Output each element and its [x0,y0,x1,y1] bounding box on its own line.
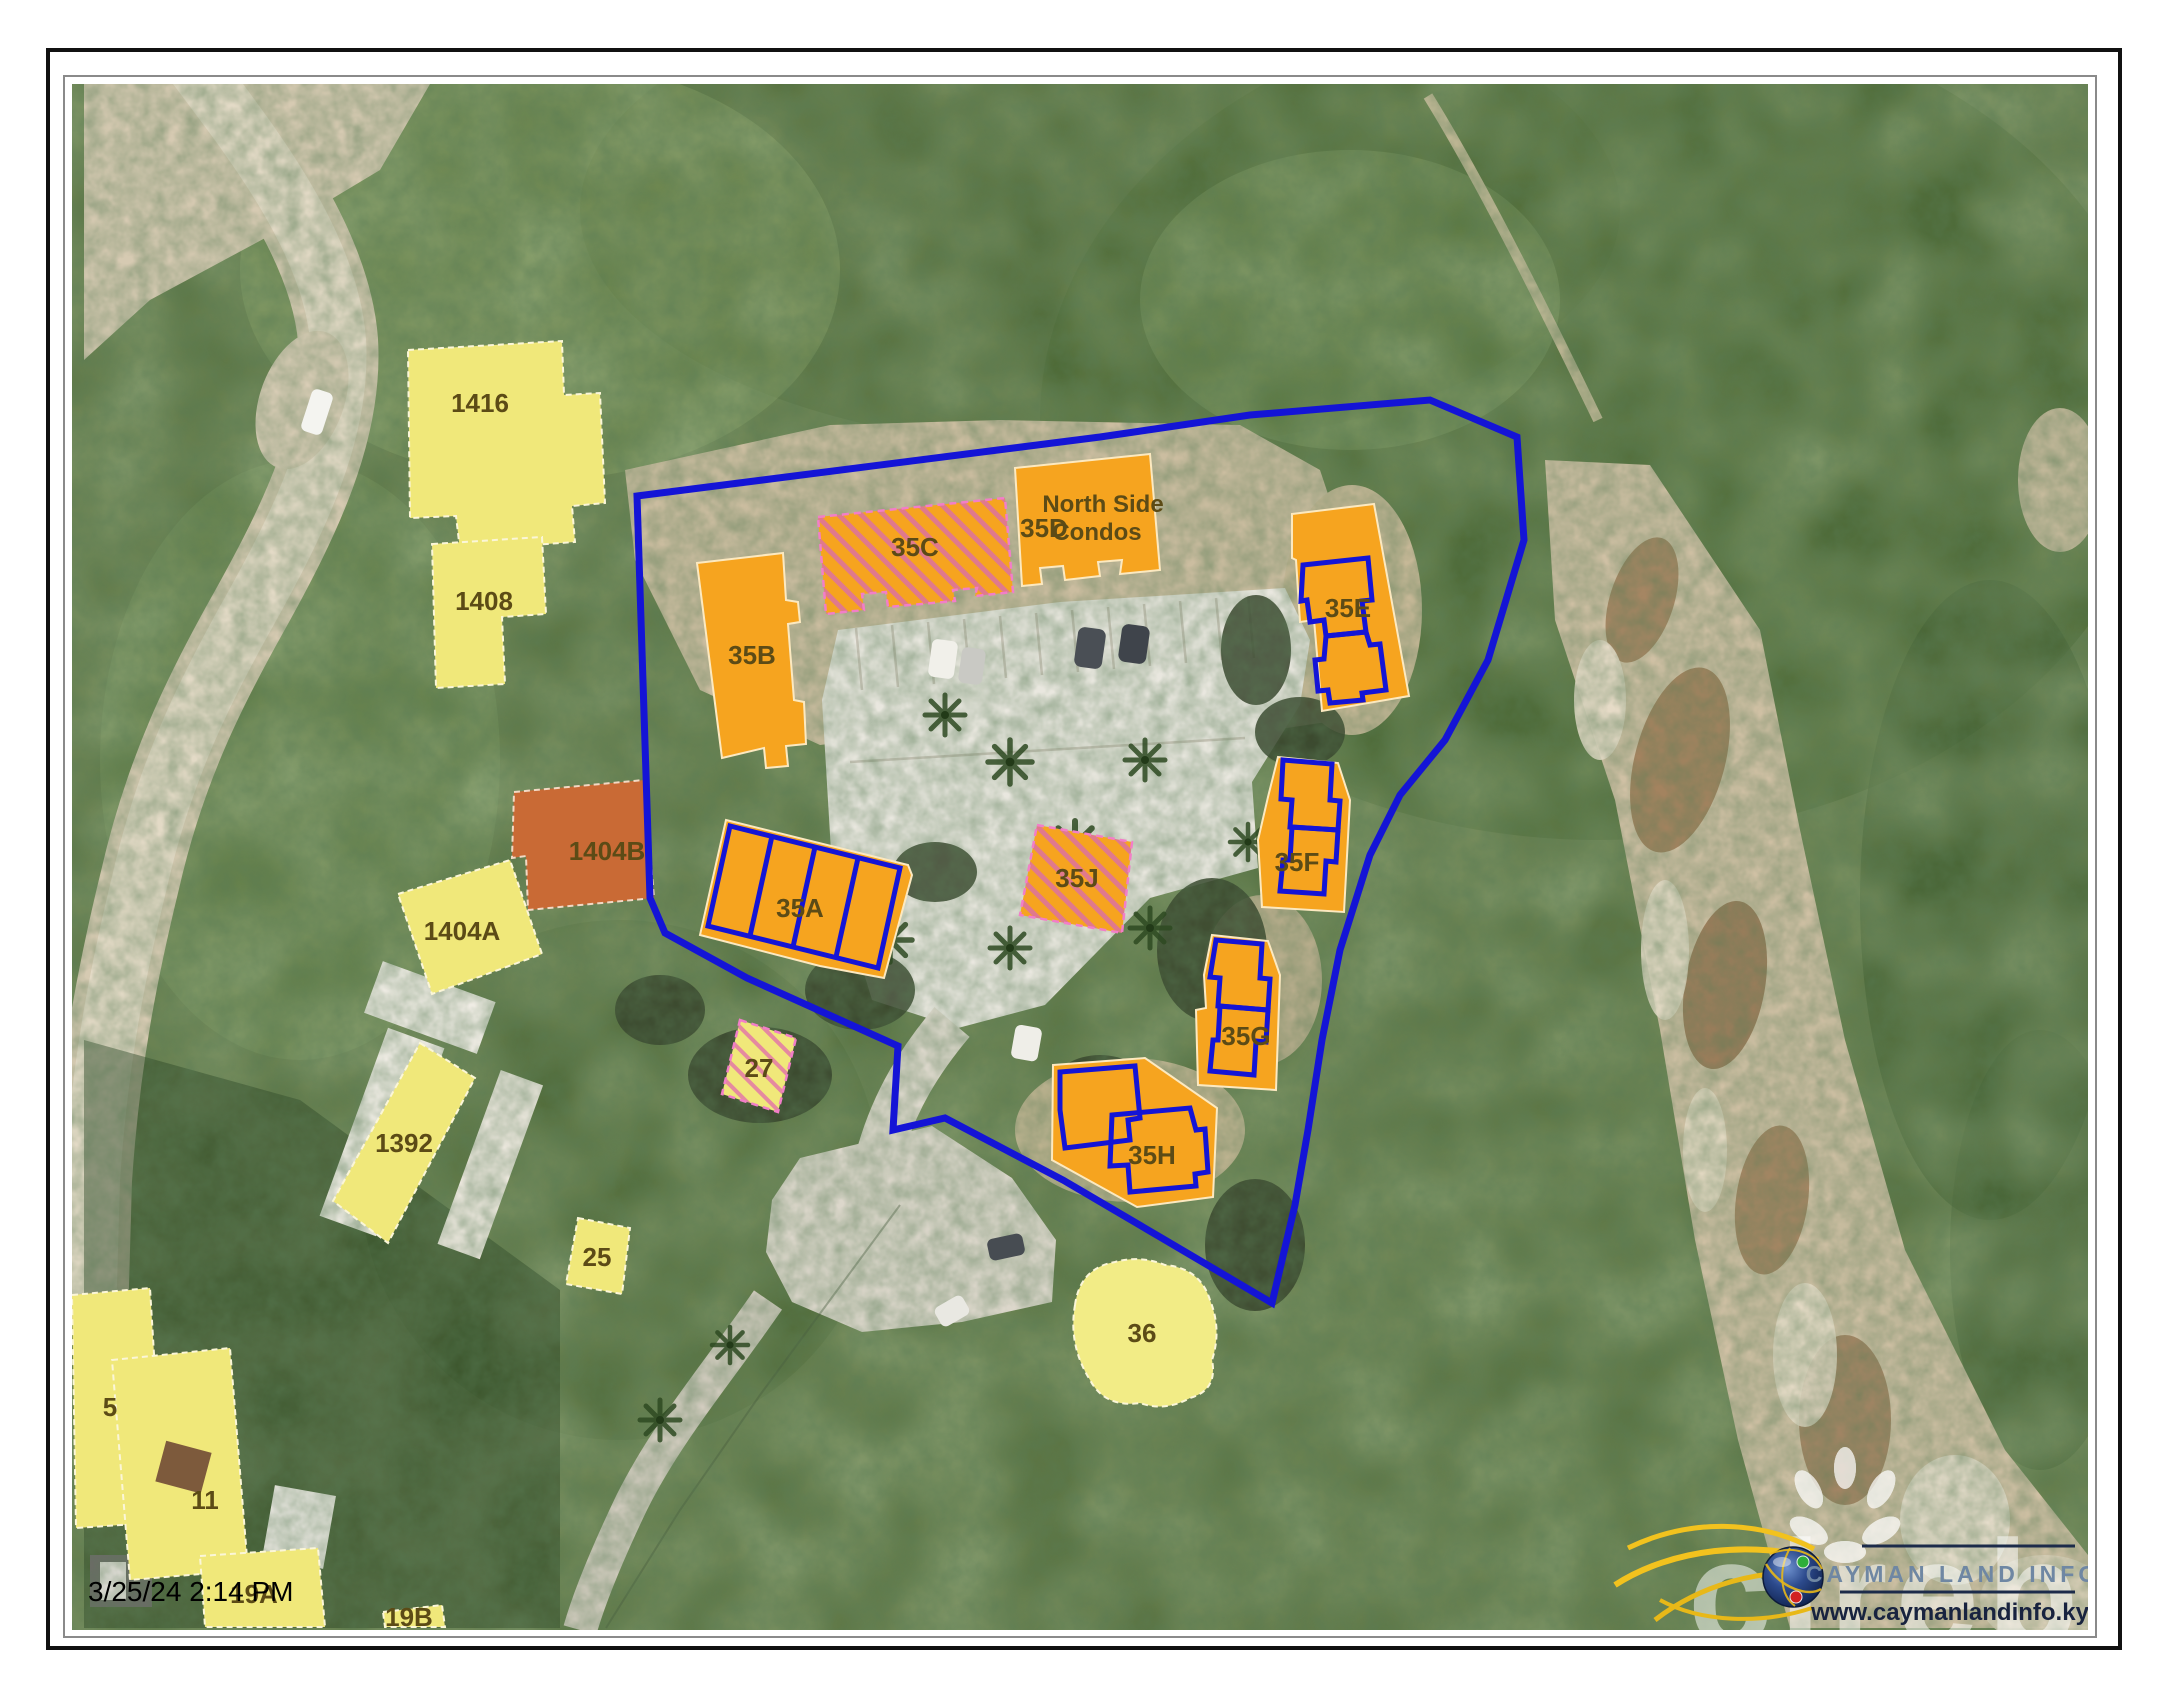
parcel-36-label: 36 [1128,1318,1157,1348]
building-35b-label: 35B [728,640,776,670]
building-35e-label: 35E [1325,593,1371,623]
logo-url[interactable]: www.caymanlandinfo.ky [1810,1599,2090,1626]
parcel-5-label: 5 [103,1392,117,1422]
parcel-19b-label: 19B [385,1602,433,1632]
building-35c-label: 35C [891,532,939,562]
building-35h-label: 35H [1128,1140,1176,1170]
building-35f-label: 35F [1275,847,1320,877]
parcel-1404b-label: 1404B [569,836,646,866]
map-report-page: 1416 1408 1404B 1404A 1392 25 27 5 11 19… [0,0,2168,1700]
parcel-25-label: 25 [583,1242,612,1272]
aerial-map-canvas[interactable]: 1416 1408 1404B 1404A 1392 25 27 5 11 19… [0,0,2168,1700]
parcel-11-label: 11 [191,1485,219,1515]
parcel-27-label: 27 [745,1053,774,1083]
complex-name-line1: North Side [1042,491,1163,518]
building-35j-label: 35J [1055,863,1098,893]
parcel-1404a-label: 1404A [424,916,501,946]
parcel-1416-label: 1416 [451,388,509,418]
complex-name-line2: Condos [1052,519,1141,546]
building-35a-label: 35A [776,893,824,923]
timestamp: 3/25/24 2:14 PM [88,1576,293,1607]
parcel-1408-label: 1408 [455,586,513,616]
building-35g-label: 35G [1221,1021,1270,1051]
logo-title: CAYMAN LAND INFO [1806,1561,2100,1587]
parcel-1392-label: 1392 [375,1128,433,1158]
